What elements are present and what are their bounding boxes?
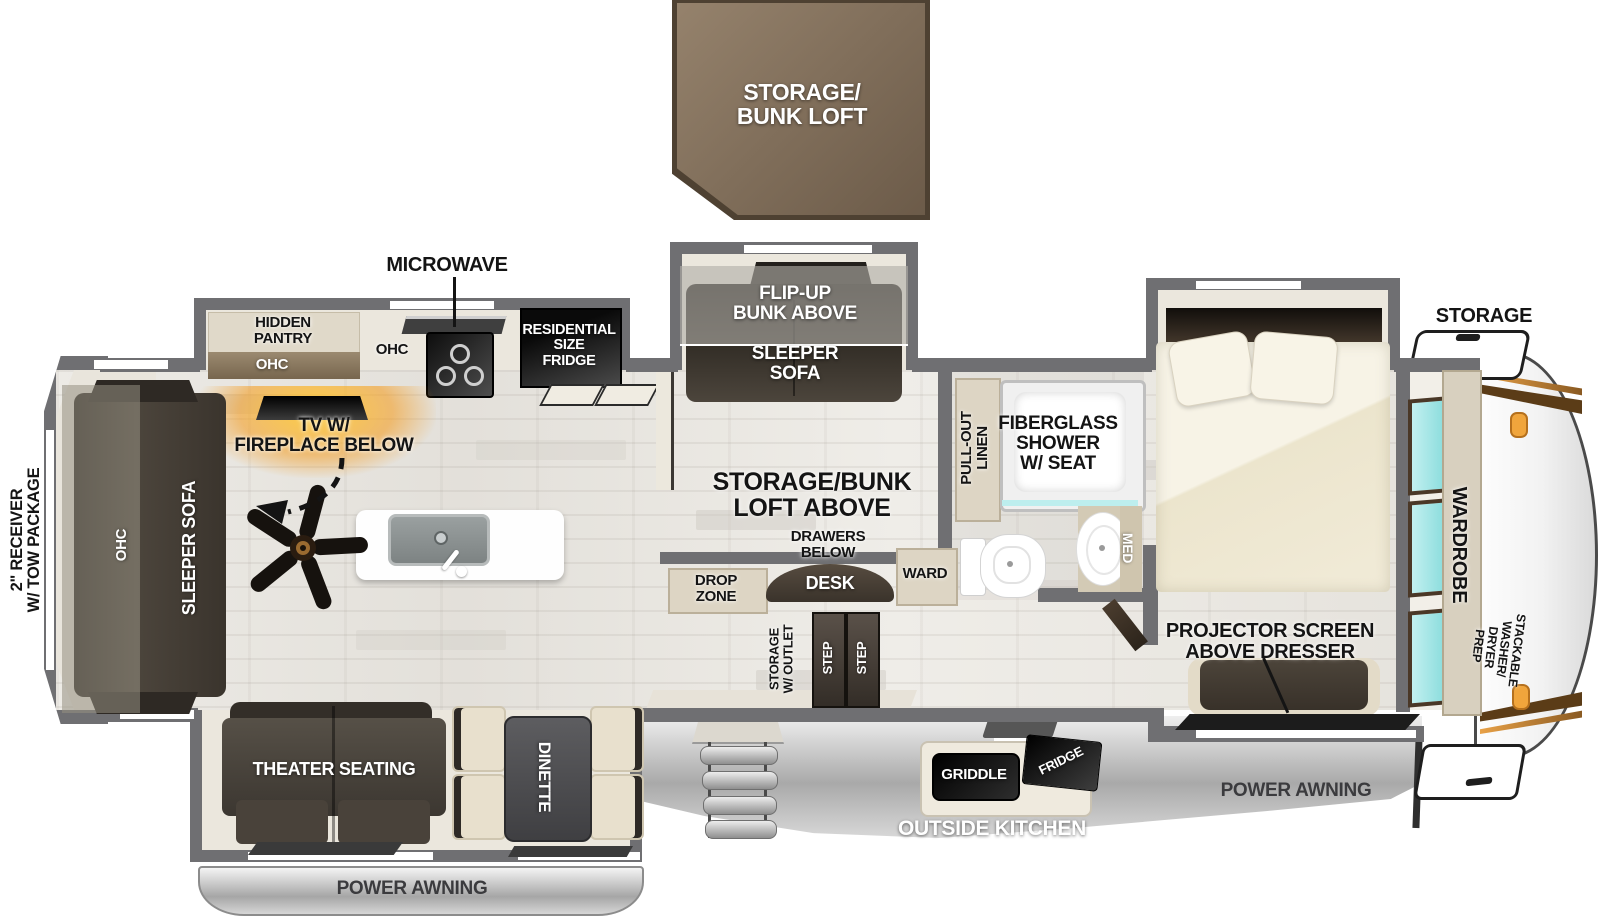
bedroom-window-2 [1408,498,1446,597]
island-sink-drain [434,531,448,545]
wardrobe-label: WARDROBE [1446,460,1470,630]
storage-outlet-label: STORAGE W/ OUTLET [765,612,799,707]
theater-foot-left [236,800,328,844]
projector-label: PROJECTOR SCREEN ABOVE DRESSER [1145,620,1395,664]
receiver-label: 2" RECEIVER W/ TOW PACKAGE [6,442,46,638]
microwave-pointer [453,277,456,327]
shower-label: FIBERGLASS SHOWER W/ SEAT [983,412,1133,476]
bunk-slide-window [744,245,872,253]
wall-bottom-connector [1148,708,1164,742]
rear-ohc-label: OHC [112,515,132,575]
storage-label: STORAGE [1414,306,1554,328]
storage-door-top-handle [1455,334,1480,341]
dinette-chair-3 [590,706,644,772]
window-rear-top [94,360,168,369]
dinette-chair-4 [590,774,644,840]
loft-above-label: STORAGE/BUNK LOFT ABOVE [682,468,942,522]
toilet-bowl [980,534,1046,598]
drop-zone-label: DROP ZONE [670,570,762,608]
kitchen-partition-wall [656,372,674,490]
desk-label: DESK [776,572,884,596]
hidden-pantry-label: HIDDEN PANTRY [218,313,348,349]
awning-right-label: POWER AWNING [1176,780,1416,802]
residential-fridge-label: RESIDENTIAL SIZE FRIDGE [521,312,617,380]
wall-top-2 [626,358,678,372]
bunk-loft-label: STORAGE/ BUNK LOFT [702,78,902,130]
island-faucet-base [456,566,467,577]
med-label: MED [1119,523,1137,573]
window-bedroom-bottom [1196,730,1416,738]
pantry-ohc-label: OHC [240,355,304,375]
rear-sleeper-sofa-label: SLEEPER SOFA [179,468,201,628]
flip-up-bunk-label: FLIP-UP BUNK ABOVE [695,282,895,326]
mid-sleeper-sofa-label: SLEEPER SOFA [695,342,895,386]
step-2-label: STEP [854,618,870,698]
rv-floorplan: POWER AWNING GRIDDLE FRIDGE OUTSIDE KITC… [0,0,1600,924]
microwave-label: MICROWAVE [357,254,537,278]
dinette-chair-2 [452,774,506,840]
drawers-below-label: DRAWERS BELOW [758,528,898,562]
entry-step-4 [705,820,777,839]
bed-pillow-right [1249,330,1339,405]
dinette-chair-1 [452,706,506,772]
projector-screen [1175,714,1420,730]
theater-foot-right [338,800,430,844]
counter-ohc-label: OHC [364,340,420,360]
entry-step-1 [700,746,778,765]
step-1-label: STEP [820,618,836,698]
awning-left-label: POWER AWNING [282,878,542,900]
bedroom-window-3 [1408,608,1446,707]
cooktop [426,332,494,398]
entry-step-2 [702,771,778,790]
tv-pointer-arrow [230,450,370,540]
outside-griddle-label: GRIDDLE [934,765,1014,785]
ward-label: WARD [896,564,954,584]
bed-slide-window [1196,281,1301,289]
bed-pillow-left [1167,330,1257,409]
wall-bottom-2 [640,708,1160,722]
entry-step-3 [703,796,777,815]
window-rear-left [46,430,54,670]
cap-handle-top [1510,412,1528,438]
theater-mat [248,842,403,855]
storage-door-bottom [1413,744,1527,800]
kitchen-slide-window [390,301,494,309]
theater-seating-label: THEATER SEATING [234,758,434,782]
outside-kitchen-label: OUTSIDE KITCHEN [862,817,1122,841]
washer-prep-label: STACKABLE WASHER/ DRYER PREP [1461,600,1534,697]
bedroom-window-1 [1408,396,1446,495]
dinette-label: DINETTE [534,722,554,832]
dinette-mat [508,846,633,857]
